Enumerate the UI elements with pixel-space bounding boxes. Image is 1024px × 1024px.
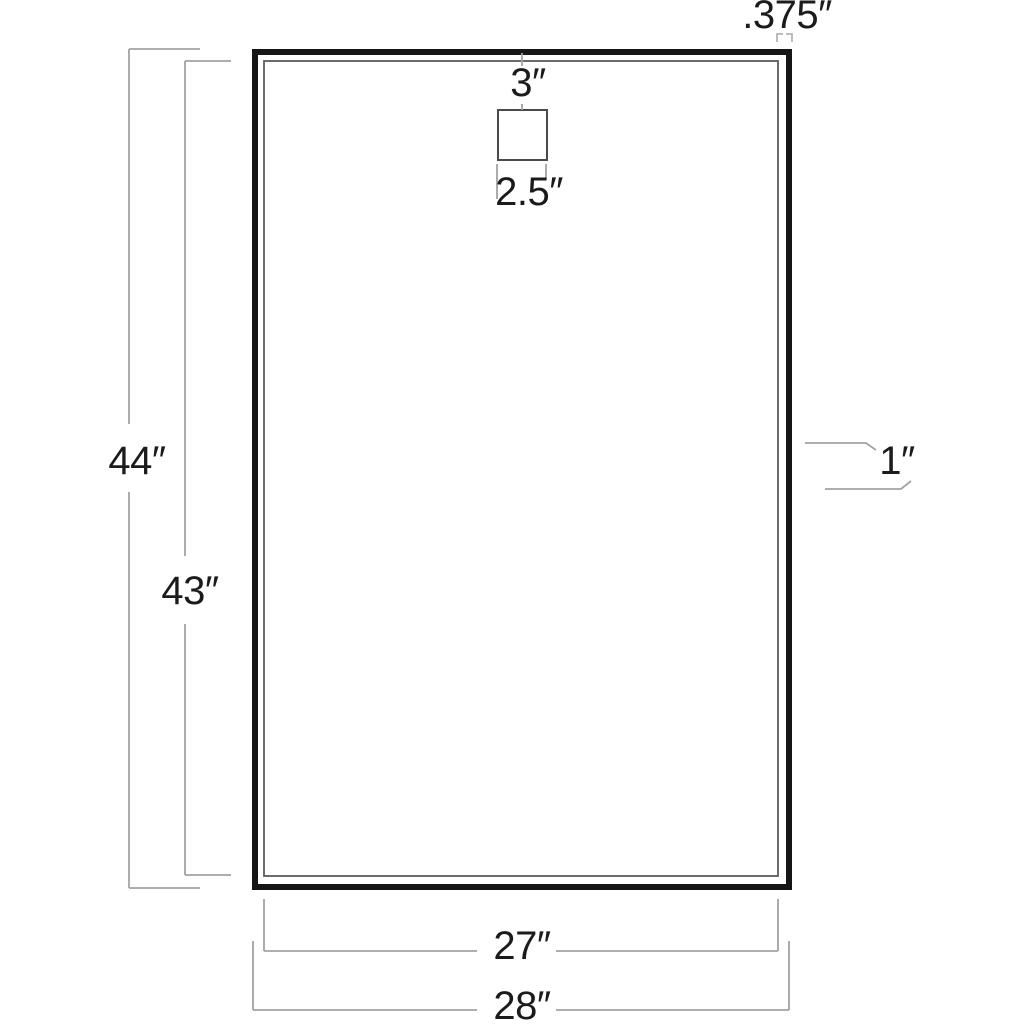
dim-label-inner-height: 43″ (161, 571, 218, 611)
diagram-canvas: .375″ 3″ 2.5″ 44″ 43″ 1″ 27″ 28″ (0, 0, 1024, 1024)
diagram-linework (0, 0, 1024, 1024)
dim-label-overall-width: 28″ (493, 986, 550, 1024)
dim-label-inner-width: 27″ (493, 926, 550, 966)
dim-label-mount-width: 2.5″ (495, 172, 563, 212)
mount-square (498, 110, 547, 160)
dim-inner-height-bracket (185, 61, 231, 875)
dim-label-mount-offset: 3″ (510, 63, 545, 103)
dim-label-frame-thickness: .375″ (742, 0, 832, 35)
dim-label-overall-height: 44″ (108, 441, 165, 481)
dim-label-edge-inset: 1″ (879, 441, 914, 481)
dim-1-top-leader (805, 443, 876, 450)
